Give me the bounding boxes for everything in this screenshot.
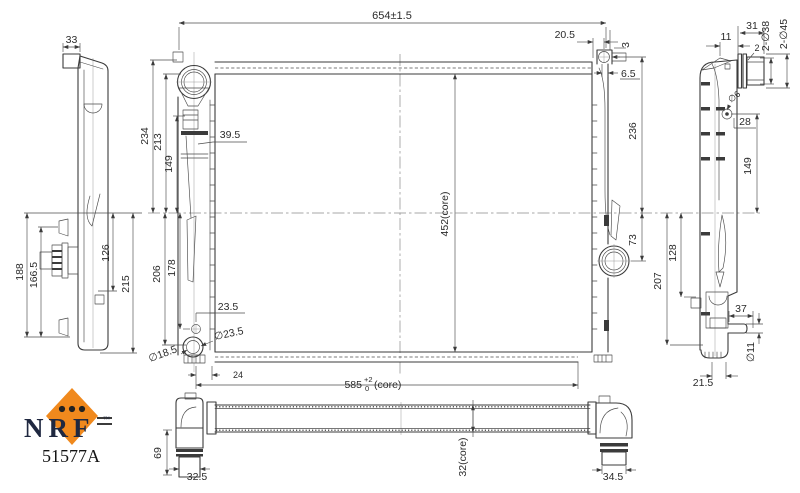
dim-32-core: 32(core): [457, 437, 469, 476]
dim-236: 236: [627, 122, 639, 140]
dim-dia-18-5: ∅18.5: [147, 343, 179, 364]
dim-178: 178: [166, 259, 178, 277]
dim-452-core: 452(core): [439, 192, 451, 237]
dim-206: 206: [151, 265, 163, 283]
dim-28: 28: [739, 116, 751, 128]
dim-585-value: 585: [344, 379, 362, 391]
dim-149-right: 149: [742, 157, 754, 175]
dim-3: 3: [620, 42, 632, 48]
dim-585-tol-dn: 0: [365, 384, 369, 393]
left-side-view: 33 188 166.5 126 215: [14, 34, 142, 353]
dim-207: 207: [652, 272, 664, 290]
dim-34-5: 34.5: [603, 471, 624, 483]
dim-6-5: 6.5: [621, 68, 636, 80]
dim-585-suffix: (core): [374, 379, 401, 391]
left-side-dims: [24, 43, 142, 353]
dim-128: 128: [667, 244, 679, 262]
dim-32-5: 32.5: [187, 471, 208, 483]
dim-2-dia-38: 2-∅38: [760, 21, 772, 51]
trademark-symbol: ™: [103, 415, 110, 423]
dim-215: 215: [120, 275, 132, 293]
bottom-dims: [163, 400, 636, 475]
dim-188: 188: [14, 263, 26, 281]
dim-149-left: 149: [163, 155, 175, 173]
logo-dots: [59, 406, 85, 412]
dim-166-5: 166.5: [28, 262, 40, 288]
dim-23-5: 23.5: [218, 301, 239, 313]
dim-31: 31: [746, 20, 758, 32]
dim-126: 126: [100, 244, 112, 262]
dim-24: 24: [233, 370, 243, 380]
dim-39-5: 39.5: [220, 129, 241, 141]
front-part: [173, 50, 631, 363]
dim-2: 2: [754, 43, 759, 53]
brand-logo: NRF ™ 51577A: [24, 388, 110, 466]
dim-654: 654±1.5: [372, 10, 412, 22]
dim-33: 33: [66, 34, 78, 46]
dim-585-tol-up: +2: [364, 375, 373, 384]
part-number: 51577A: [42, 446, 100, 466]
dim-37: 37: [735, 303, 747, 315]
bottom-view: 69 32.5 34.5 32(core): [152, 393, 636, 483]
dim-2-dia-45: 2-∅45: [778, 19, 790, 49]
technical-drawing: 33 188 166.5 126 215: [0, 0, 800, 493]
dim-73: 73: [627, 234, 639, 246]
left-side-part: [40, 54, 108, 350]
dim-20-5: 20.5: [555, 29, 576, 41]
centerlines: [93, 52, 760, 435]
right-side-view: 11 31 2 2-∅38 2-∅45 ∅6 28 149 128 207 37…: [652, 19, 790, 389]
dim-dia-6: ∅6: [726, 89, 742, 105]
dim-dia-23-5: ∅23.5: [213, 325, 245, 343]
right-side-dims: [667, 26, 790, 379]
dim-69: 69: [152, 447, 164, 459]
bottom-part: [176, 393, 632, 477]
brand-name: NRF: [24, 413, 95, 443]
dim-21-5: 21.5: [693, 377, 714, 389]
front-view: 654±1.5 234 213 149 39.5 206 178 452(cor…: [139, 10, 646, 393]
dim-11: 11: [721, 31, 732, 43]
dim-234: 234: [139, 127, 151, 145]
dim-dia-11: ∅11: [745, 342, 757, 362]
drawing-sheet: 33 188 166.5 126 215: [0, 0, 800, 493]
dim-213: 213: [152, 133, 164, 151]
